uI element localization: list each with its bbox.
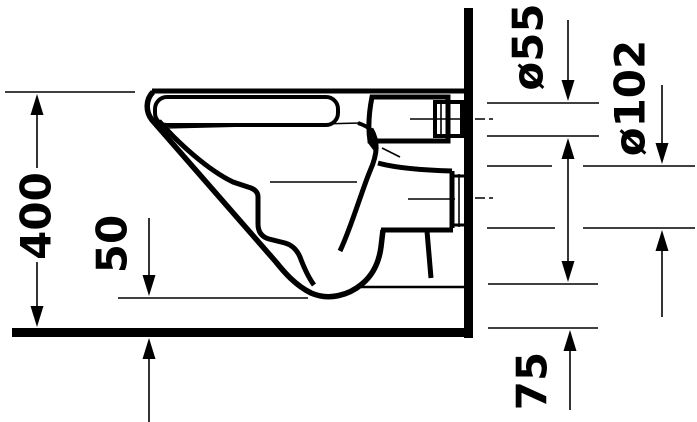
dim-75-arrow-up (564, 330, 577, 351)
dim-400-arrow-up (31, 94, 44, 115)
wall (464, 8, 473, 338)
dim-102-label: ø102 (606, 40, 655, 157)
dim-50-arrow-up (143, 338, 156, 359)
toilet-dimension-drawing: 400 50 ø55 ø102 75 (0, 0, 697, 422)
toilet-section (147, 91, 464, 297)
dim-75-label: 75 (508, 352, 557, 410)
dim-400-arrow-down (31, 306, 44, 327)
dim-102-arrow-up (656, 230, 669, 251)
dim-75-arrow-down (562, 261, 575, 282)
floor (12, 328, 473, 337)
outlet-rear-slant (427, 231, 431, 278)
dimension-50: 50 (88, 215, 309, 422)
seat-profile (155, 97, 338, 125)
dim-50-label: 50 (88, 215, 137, 273)
dimension-400: 400 (5, 92, 135, 327)
dim-55-arrow-down (562, 80, 575, 101)
dim-55-arrow-up (562, 138, 575, 159)
dimension-dia55: ø55 (487, 3, 599, 261)
bowl-inner-profile (159, 121, 314, 285)
dim-55-label: ø55 (504, 3, 553, 90)
technical-drawing-canvas: 400 50 ø55 ø102 75 (0, 0, 697, 422)
dimension-75: 75 (488, 261, 598, 410)
dim-50-arrow-down (143, 275, 156, 296)
dim-102-arrow-down (656, 143, 669, 164)
flush-channel-edge (382, 148, 400, 157)
trap-weir-curve (340, 129, 376, 251)
outlet-top-edge (378, 163, 452, 171)
dim-400-label: 400 (12, 172, 61, 260)
